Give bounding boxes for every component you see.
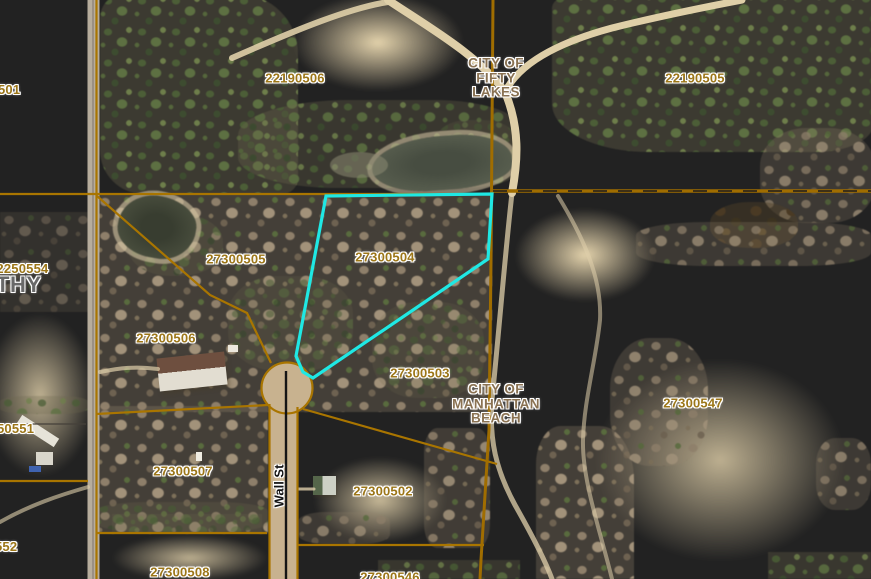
parcel-label-27300504: 27300504 [355,250,414,265]
parcel-label-27300506: 27300506 [136,331,195,346]
city-label-manhattan-beach: CITY OF MANHATTAN BEACH [452,382,540,426]
parcel-label-27300507: 27300507 [153,464,212,479]
city-label-line: MANHATTAN [452,397,540,412]
city-label-line: LAKES [468,85,524,100]
labels-layer: 22190506 22190505 27300505 27300504 2730… [0,0,871,579]
parcel-label-27300505: 27300505 [206,252,265,267]
city-label-line: CITY OF [468,56,524,71]
parcel-label-22190505: 22190505 [665,71,724,86]
parcel-label-27300547: 27300547 [663,396,722,411]
parcel-label-27300502: 27300502 [353,484,412,499]
parcel-label-22190506: 22190506 [265,71,324,86]
parcel-label-partial-50551: 50551 [0,421,34,436]
city-label-line: CITY OF [452,382,540,397]
street-label-wall-st: Wall St [272,465,287,508]
aerial-parcel-map[interactable]: 22190506 22190505 27300505 27300504 2730… [0,0,871,579]
parcel-label-partial-552: 552 [0,539,17,554]
city-label-line: FIFTY [468,71,524,86]
parcel-label-27300508: 27300508 [150,565,209,579]
township-label-partial: THY [0,272,42,298]
city-label-fifty-lakes: CITY OF FIFTY LAKES [468,56,524,100]
parcel-label-27300503: 27300503 [390,366,449,381]
city-label-line: BEACH [452,411,540,426]
parcel-label-27300546: 27300546 [360,570,419,579]
parcel-label-partial-501: 501 [0,82,20,97]
